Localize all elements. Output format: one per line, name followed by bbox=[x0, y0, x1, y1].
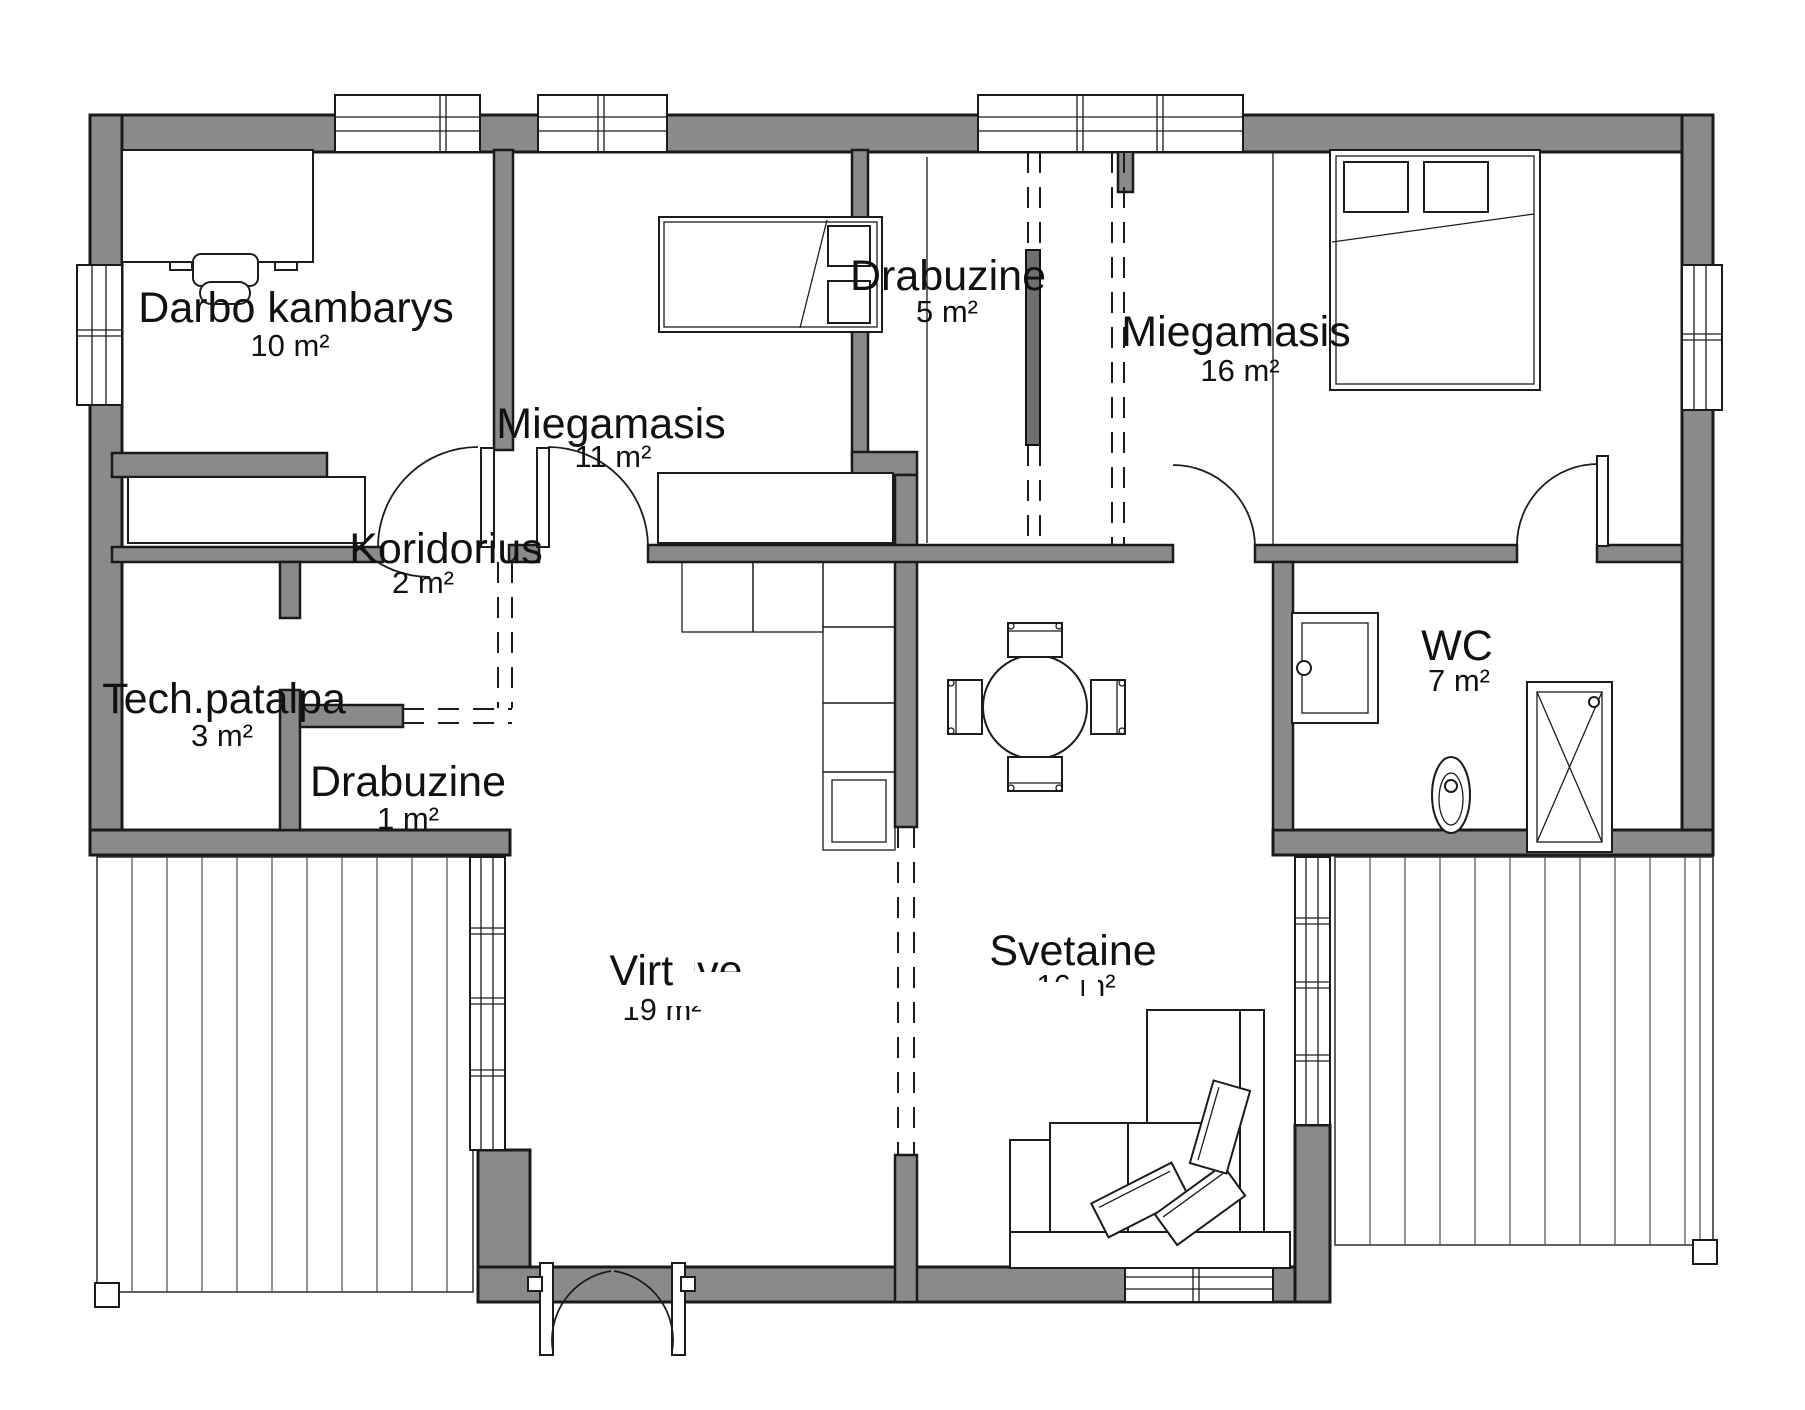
erase-virtuve-1 bbox=[676, 952, 694, 998]
room-area-tech-patalpa: 3 m² bbox=[191, 718, 253, 753]
wall-south-bedrooms-b bbox=[1255, 545, 1517, 562]
wall-tech-north bbox=[112, 547, 383, 562]
erase-svetaine-area-1 bbox=[1036, 982, 1076, 1000]
wall-connector bbox=[852, 452, 917, 475]
wall-north bbox=[90, 115, 1713, 152]
window-west bbox=[77, 265, 122, 405]
room-label-drabuzine-1: Drabuzine bbox=[310, 758, 506, 806]
room-area-wc: 7 m² bbox=[1428, 663, 1490, 698]
erase-virtuve-2 bbox=[694, 972, 758, 994]
floor-plan-drawing: Darbo kambarys 10 m² Miegamasis 11 m² Dr… bbox=[0, 0, 1805, 1410]
dining-chair-left bbox=[948, 680, 982, 734]
bed-icon-miegamasis11 bbox=[659, 217, 882, 332]
room-label-tech-patalpa: Tech.patalpa bbox=[102, 675, 346, 723]
dining-chair-bottom bbox=[1008, 757, 1062, 791]
floor-plan-page: Darbo kambarys 10 m² Miegamasis 11 m² Dr… bbox=[0, 0, 1805, 1410]
window-living-east bbox=[1295, 857, 1330, 1125]
bed-icon-miegamasis16 bbox=[1330, 150, 1540, 390]
wall-south-bedrooms-a bbox=[648, 545, 1173, 562]
room-label-drabuzine-5: Drabuzine bbox=[850, 252, 1046, 300]
dining-chair-top bbox=[1008, 623, 1062, 657]
window-south-living bbox=[1125, 1267, 1273, 1302]
dresser-icon bbox=[658, 473, 893, 543]
wall-darbo-south bbox=[112, 453, 327, 477]
wall-wc-west bbox=[1273, 562, 1293, 830]
room-area-koridorius: 2 m² bbox=[392, 565, 454, 600]
wall-virtuve-svetaine-lower bbox=[895, 1155, 917, 1302]
room-area-darbo-kambarys: 10 m² bbox=[250, 328, 329, 363]
room-label-miegamasis-16: Miegamasis bbox=[1121, 308, 1350, 356]
wall-east bbox=[1682, 115, 1713, 855]
door-jamb-left bbox=[528, 1277, 542, 1291]
wall-south-bedrooms-c bbox=[1597, 545, 1682, 562]
erase-svetaine-area-2 bbox=[1084, 970, 1098, 1000]
wall-south-west bbox=[90, 830, 510, 855]
wall-virtuve-svetaine-upper bbox=[895, 475, 917, 827]
window-kitchen-west bbox=[470, 857, 505, 1150]
wall-stub-miegamasis16 bbox=[1118, 150, 1133, 192]
door-jamb-right bbox=[681, 1277, 695, 1291]
toilet-icon bbox=[1432, 757, 1470, 833]
door-leaf bbox=[1597, 456, 1608, 546]
wall-tech-east-upper bbox=[280, 562, 300, 618]
shower-icon bbox=[1527, 682, 1612, 852]
window-north-3 bbox=[978, 95, 1243, 152]
window-north-1 bbox=[335, 95, 480, 152]
sink-icon bbox=[1292, 613, 1378, 723]
room-area-miegamasis-11: 11 m² bbox=[575, 439, 652, 474]
room-area-drabuzine-1: 1 m² bbox=[377, 801, 439, 836]
room-area-miegamasis-16: 16 m² bbox=[1200, 353, 1279, 388]
window-east bbox=[1682, 265, 1722, 410]
erase-svetaine-dash bbox=[920, 970, 946, 988]
hallway-cabinet bbox=[128, 477, 365, 543]
erase-virtuve-area-2 bbox=[658, 993, 706, 1006]
wall-south-east bbox=[1273, 830, 1713, 855]
wall-west bbox=[90, 115, 122, 855]
wall-living-east bbox=[1295, 1125, 1330, 1302]
deck-right-post bbox=[1693, 1240, 1717, 1264]
deck-left-post bbox=[95, 1283, 119, 1307]
dining-chair-right bbox=[1091, 680, 1125, 734]
dining-table-icon bbox=[983, 655, 1087, 759]
room-area-drabuzine-5: 5 m² bbox=[916, 294, 978, 329]
room-label-darbo-kambarys: Darbo kambarys bbox=[138, 284, 453, 332]
erase-virtuve-area-1 bbox=[616, 993, 642, 1007]
window-north-2 bbox=[538, 95, 667, 152]
